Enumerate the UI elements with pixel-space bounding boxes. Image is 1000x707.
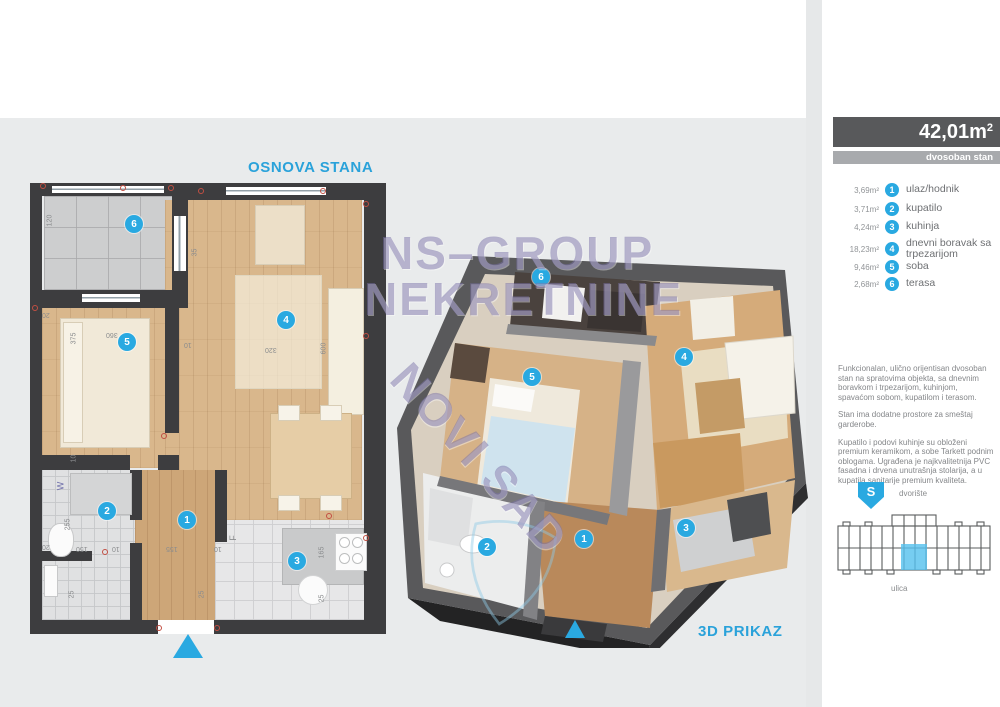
dimension: 20	[42, 311, 50, 318]
watermark-line2: NEKRETNINE	[364, 272, 683, 326]
dimension-marker	[32, 305, 38, 311]
window	[226, 187, 326, 195]
balcony-door	[174, 216, 186, 271]
wall	[30, 620, 158, 634]
rug	[235, 275, 322, 389]
dimension-marker	[198, 188, 204, 194]
dimension-marker	[326, 513, 332, 519]
room-marker-3-3d: 3	[677, 519, 695, 537]
chair	[278, 495, 300, 511]
window	[82, 294, 140, 302]
dimension: 25	[198, 591, 205, 599]
dimension: 165	[318, 547, 325, 559]
dimension: 320	[265, 346, 277, 353]
coffee-table-3d	[695, 378, 745, 434]
compass-icon: S	[858, 482, 884, 509]
description-block: Funkcionalan, ulično orijentisan dvosoba…	[838, 364, 994, 494]
chair	[278, 405, 300, 421]
room-label: soba	[906, 261, 998, 272]
room-marker-1: 1	[178, 511, 196, 529]
dimension: 20	[42, 543, 50, 550]
dimension: 25	[68, 591, 75, 599]
description-paragraph: Funkcionalan, ulično orijentisan dvosoba…	[838, 364, 994, 402]
dimension-marker	[320, 188, 326, 194]
burner	[339, 537, 350, 548]
wall	[130, 543, 142, 620]
room-number-badge: 6	[885, 277, 899, 291]
dimension-marker	[40, 183, 46, 189]
room-area: 4,24m²	[833, 223, 879, 232]
dimension: 255	[64, 519, 71, 531]
room-marker-4: 4	[277, 311, 295, 329]
room-marker-3: 3	[288, 552, 306, 570]
dimension: 10	[184, 341, 192, 348]
description-paragraph: Stan ima dodatne prostore za smeštaj gar…	[838, 410, 994, 429]
wall	[30, 183, 42, 632]
total-area-value: 42,01m	[919, 121, 987, 144]
dimension-marker	[156, 625, 162, 631]
dimension: 375	[70, 333, 77, 345]
legend-row: 4,24m² 3 kuhinja	[833, 220, 998, 234]
description-paragraph: Kupatilo i podovi kuhinje su obloženi pr…	[838, 438, 994, 486]
burner	[352, 537, 363, 548]
apartment-type-bar: dvosoban stan	[833, 151, 1000, 164]
dimension: 10	[214, 545, 222, 552]
sofa	[328, 288, 364, 415]
plan2d-title: OSNOVA STANA	[248, 159, 373, 176]
entrance-door	[158, 620, 214, 634]
legend-row: 9,46m² 5 soba	[833, 260, 998, 274]
sink-3d	[440, 563, 454, 577]
wall	[215, 470, 227, 542]
dimension: 155	[166, 545, 178, 552]
room-label: kupatilo	[906, 203, 998, 214]
kitchen-appliance-3d	[727, 492, 771, 542]
plan3d-title: 3D PRIKAZ	[698, 623, 783, 640]
room-number-badge: 2	[885, 202, 899, 216]
room-marker-4-3d: 4	[675, 348, 693, 366]
room-area: 9,46m²	[833, 263, 879, 272]
dimension: 10	[70, 455, 77, 463]
armchair-3d	[690, 296, 735, 340]
washer-label: W	[55, 482, 65, 491]
building-locator	[835, 508, 993, 584]
burner	[339, 553, 350, 564]
room-label: kuhinja	[906, 221, 998, 232]
room-marker-2: 2	[98, 502, 116, 520]
window	[52, 186, 164, 193]
room-marker-6: 6	[125, 215, 143, 233]
bath-sink	[44, 565, 58, 597]
room-label: terasa	[906, 278, 998, 289]
dimension: 10	[112, 545, 120, 552]
entrance-arrow-2d	[173, 634, 203, 658]
room-number-badge: 4	[885, 242, 899, 256]
legend-row: 18,23m² 4 dnevni boravak sa trpezarijom	[833, 238, 998, 260]
room-marker-5: 5	[118, 333, 136, 351]
wall	[214, 620, 386, 634]
highlighted-unit	[901, 544, 927, 570]
legend-row: 3,69m² 1 ulaz/hodnik	[833, 183, 998, 197]
dining-table	[270, 413, 352, 499]
dimension-marker	[214, 625, 220, 631]
building-outline	[835, 508, 993, 584]
room-area: 18,23m²	[833, 245, 879, 254]
room-number-badge: 1	[885, 183, 899, 197]
page: OSNOVA STANA	[0, 0, 1000, 707]
dimension: 600	[320, 343, 327, 355]
sideboard	[255, 205, 305, 265]
dimension-marker	[363, 333, 369, 339]
dimension: 120	[46, 215, 53, 227]
dimension-marker	[102, 549, 108, 555]
dimension-marker	[168, 185, 174, 191]
total-area-bar: 42,01m2	[833, 117, 1000, 147]
room-area: 3,71m²	[833, 205, 879, 214]
room-terrace-floor	[44, 196, 172, 290]
dimension: 25	[318, 595, 325, 603]
dimension-marker	[363, 201, 369, 207]
wall	[165, 308, 179, 433]
dimension-marker	[161, 433, 167, 439]
wall	[42, 455, 130, 470]
room-area: 2,68m²	[833, 280, 879, 289]
street-label: ulica	[891, 584, 907, 593]
chair	[320, 495, 342, 511]
dimension-marker	[363, 535, 369, 541]
room-label: ulaz/hodnik	[906, 184, 998, 195]
room-number-badge: 5	[885, 260, 899, 274]
room-marker-1-3d: 1	[575, 530, 593, 548]
courtyard-label: dvorište	[899, 489, 927, 498]
wall	[158, 455, 179, 470]
wardrobe-3d	[450, 343, 490, 383]
room-marker-2-3d: 2	[478, 538, 496, 556]
dimension-marker	[120, 185, 126, 191]
apartment-type-label: dvosoban stan	[926, 152, 993, 163]
room-number-badge: 3	[885, 220, 899, 234]
entrance-arrow-3d	[565, 620, 585, 638]
floorplan-2d: W F 120 35 20 375 360 10 320 600 10 255 …	[30, 183, 388, 635]
legend-row: 3,71m² 2 kupatilo	[833, 202, 998, 216]
burner	[352, 553, 363, 564]
compass-letter: S	[867, 484, 876, 499]
chair	[320, 405, 342, 421]
dimension: 360	[106, 331, 118, 338]
legend-row: 2,68m² 6 terasa	[833, 277, 998, 291]
dimension: 35	[191, 249, 198, 257]
room-marker-5-3d: 5	[523, 368, 541, 386]
room-area: 3,69m²	[833, 186, 879, 195]
fridge-label: F	[228, 535, 238, 541]
dimension: 150	[76, 545, 88, 552]
room-label: dnevni boravak sa trpezarijom	[906, 238, 998, 260]
